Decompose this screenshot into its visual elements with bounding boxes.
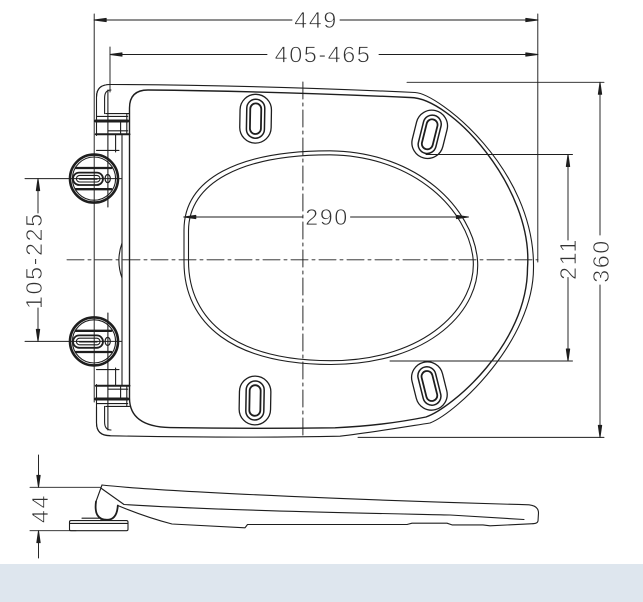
svg-text:211: 211 xyxy=(555,238,581,280)
svg-text:105-225: 105-225 xyxy=(21,212,47,309)
svg-text:360: 360 xyxy=(588,239,614,283)
svg-text:405-465: 405-465 xyxy=(275,42,372,68)
svg-text:290: 290 xyxy=(305,204,349,230)
svg-text:44: 44 xyxy=(27,494,53,523)
svg-text:449: 449 xyxy=(294,7,338,33)
